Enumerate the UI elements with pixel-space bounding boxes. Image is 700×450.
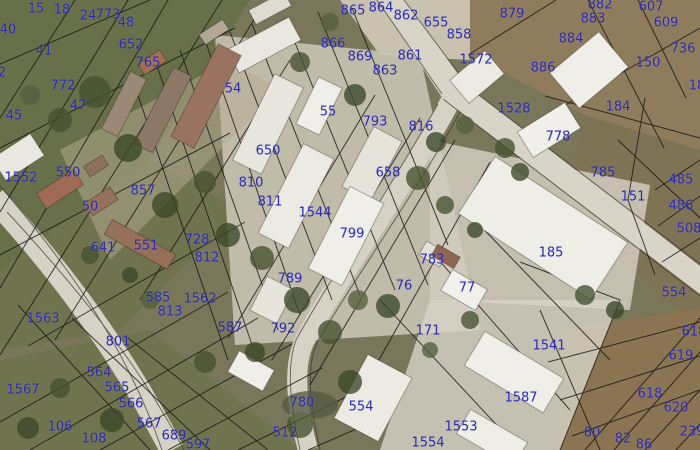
orthophoto-layer — [0, 0, 700, 450]
aerial-map[interactable]: 1518247734840416527657724745286586486265… — [0, 0, 700, 450]
